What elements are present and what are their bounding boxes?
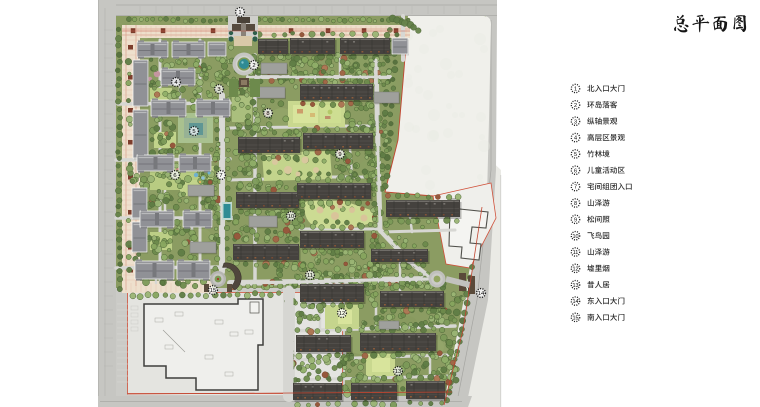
svg-text:9: 9	[574, 217, 577, 223]
svg-text:14: 14	[478, 291, 485, 297]
svg-text:8: 8	[574, 201, 577, 207]
svg-text:2: 2	[574, 103, 577, 109]
svg-text:8: 8	[266, 111, 269, 117]
svg-text:1: 1	[574, 87, 577, 93]
svg-text:10: 10	[288, 214, 294, 220]
svg-text:2: 2	[252, 63, 255, 69]
svg-text:12: 12	[572, 267, 578, 273]
svg-text:7: 7	[219, 173, 222, 179]
svg-text:12: 12	[339, 311, 345, 317]
svg-text:15: 15	[572, 316, 578, 322]
svg-text:5: 5	[192, 129, 195, 135]
svg-text:13: 13	[395, 369, 401, 375]
svg-text:4: 4	[574, 136, 577, 142]
svg-text:6: 6	[173, 173, 176, 179]
svg-text:7: 7	[574, 185, 577, 191]
svg-text:11: 11	[307, 273, 313, 279]
svg-text:1: 1	[238, 10, 241, 16]
svg-text:3: 3	[574, 119, 577, 125]
svg-text:14: 14	[572, 299, 578, 305]
svg-text:3: 3	[217, 87, 220, 93]
svg-text:9: 9	[338, 152, 341, 158]
svg-text:13: 13	[572, 283, 578, 289]
svg-text:15: 15	[210, 288, 216, 294]
svg-text:11: 11	[573, 250, 579, 256]
svg-text:10: 10	[572, 234, 578, 240]
svg-text:6: 6	[574, 168, 577, 174]
svg-text:5: 5	[574, 152, 577, 158]
